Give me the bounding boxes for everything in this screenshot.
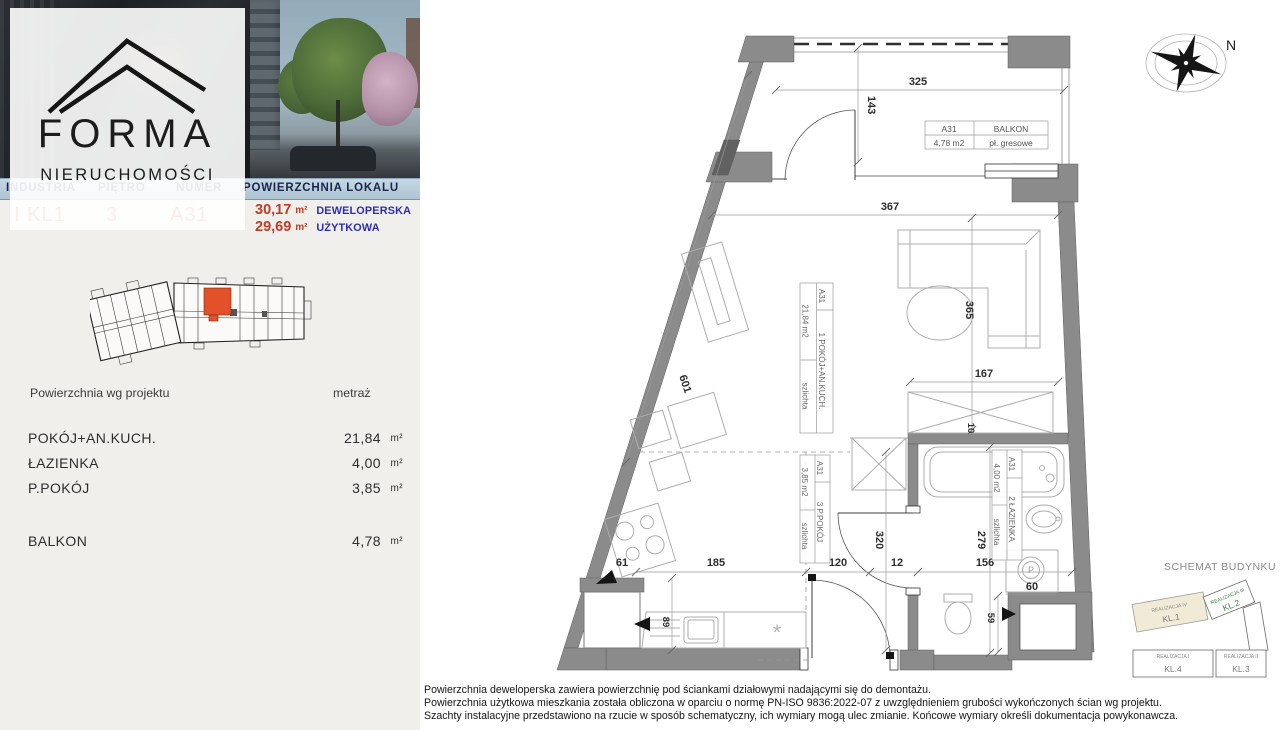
compass-north-label: N xyxy=(1226,37,1236,53)
dim-wall-diagonal: 601 xyxy=(676,373,693,394)
room-boundaries xyxy=(640,438,908,612)
parked-car xyxy=(290,146,376,168)
floor-plan-drawing: P * xyxy=(420,0,1280,730)
area-uzytkowa: 29,69 m² UŻYTKOWA xyxy=(255,218,411,235)
column-powierzchnia: POWIERZCHNIA LOKALU xyxy=(243,182,399,194)
schemat-block-kl1: REALIZACJA IV KL.1 xyxy=(1132,592,1208,632)
tree-blossom xyxy=(362,52,418,126)
dim-balcony-depth: 143 xyxy=(865,96,877,114)
schemat-budynku: SCHEMAT BUDYNKU REALIZACJA IV KL.1 REALI… xyxy=(1132,561,1276,677)
room-label-pokoj: 21,84 m2 szlichta A31 1 POKÓJ+AN.KUCH. xyxy=(800,283,833,433)
toilet xyxy=(944,594,972,634)
room-label: P.POKÓJ xyxy=(28,480,90,496)
dim-balcony-width: 325 xyxy=(909,76,927,88)
brand-logo: FORMA NIERUCHOMOŚCI xyxy=(10,8,245,230)
pokoj-area: 21,84 m2 xyxy=(801,304,810,338)
ppokoj-name: 3 P.POKÓJ xyxy=(815,502,824,542)
bathroom-door xyxy=(838,506,920,595)
disclaimer-text: Powierzchnia deweloperska zawiera powier… xyxy=(424,684,1280,723)
dim-room-width: 367 xyxy=(881,201,899,213)
schemat-block-kl3: REALIZACJA II KL.3 xyxy=(1216,650,1266,677)
room-label: POKÓJ+AN.KUCH. xyxy=(28,430,156,446)
wardrobe xyxy=(908,392,1053,433)
dim-bath-width: 156 xyxy=(976,557,994,569)
area-uzytkowa-value: 29,69 xyxy=(255,219,291,235)
schemat-block-kl4: REALIZACJA I KL.4 xyxy=(1133,650,1213,677)
roof-logo-icon xyxy=(10,8,245,118)
room-area-unit: m² xyxy=(391,483,403,494)
building-facade-left xyxy=(250,0,280,150)
brand-subtitle: NIERUCHOMOŚCI xyxy=(10,166,245,185)
schemat-kl4-label: KL.4 xyxy=(1164,664,1182,674)
dim-kitchen-width: 185 xyxy=(707,557,725,569)
dim-hall-width: 120 xyxy=(829,557,847,569)
ppokoj-area: 3,85 m2 xyxy=(800,468,809,497)
disclaimer-line: Powierzchnia użytkowa mieszkania została… xyxy=(424,697,1280,710)
schemat-title: SCHEMAT BUDYNKU xyxy=(1164,561,1276,573)
shaft-box xyxy=(852,438,906,490)
balcony-code: A31 xyxy=(941,124,956,134)
schemat-kl4-name: REALIZACJA I xyxy=(1157,654,1190,660)
pokoj-code: A31 xyxy=(817,289,826,304)
room-area-unit: m² xyxy=(391,458,403,469)
lazienka-finish: szlichta xyxy=(992,519,1001,546)
pokoj-name: 1 POKÓJ+AN.KUCH. xyxy=(817,333,826,410)
room-area-unit: m² xyxy=(391,536,403,547)
dim-bath-depth: 279 xyxy=(975,531,987,549)
dim-kitchen-corner: 61 xyxy=(616,557,628,569)
balcony-area: 4,78 m2 xyxy=(934,138,965,148)
floor-overview-minimap xyxy=(90,253,318,365)
schemat-connector xyxy=(1243,602,1268,652)
corner-sofa xyxy=(898,230,1040,348)
balcony-door xyxy=(785,110,855,180)
minimap-left-wing xyxy=(90,274,183,365)
minimap-right-wing xyxy=(174,278,311,349)
washbasin xyxy=(1026,505,1062,533)
area-uzytkowa-label: UŻYTKOWA xyxy=(316,222,379,234)
area-deweloperska-label: DEWELOPERSKA xyxy=(316,205,411,217)
pokoj-finish: szlichta xyxy=(801,383,810,410)
table-header-right: metraż xyxy=(333,386,371,400)
room-label: BALKON xyxy=(28,533,87,549)
unit-areas: 30,17 m² DEWELOPERSKA 29,69 m² UŻYTKOWA xyxy=(255,201,411,235)
compass-rose-icon: N xyxy=(1142,23,1237,103)
room-label-ppokoj: 3,85 m2 szlichta A31 3 P.POKÓJ xyxy=(800,455,830,563)
table-header-left: Powierzchnia wg projektu xyxy=(30,386,169,400)
brand-name: FORMA xyxy=(10,112,245,157)
dim-counter-depth: 89 xyxy=(660,617,671,628)
dim-wardrobe-width: 167 xyxy=(975,368,993,380)
area-deweloperska: 30,17 m² DEWELOPERSKA xyxy=(255,201,411,218)
lazienka-name: 2 ŁAZIENKA xyxy=(1007,496,1016,542)
areas-table: Powierzchnia wg projektu metraż POKÓJ+AN… xyxy=(0,380,420,580)
room-area-unit: m² xyxy=(391,433,403,444)
lazienka-area: 4,00 m2 xyxy=(992,464,1001,493)
area-deweloperska-unit: m² xyxy=(295,205,307,216)
ppokoj-finish: szlichta xyxy=(800,523,809,550)
room-area-value: 4,78 xyxy=(352,533,381,549)
lazienka-code: A31 xyxy=(1007,457,1016,472)
room-label: ŁAZIENKA xyxy=(28,455,99,471)
disclaimer-line: Szachty instalacyjne przedstawiono na rz… xyxy=(424,710,1280,723)
listing-side-panel: INDUSTRIA PIĘTRO NUMER POWIERZCHNIA LOKA… xyxy=(0,0,420,730)
schemat-kl3-name: REALIZACJA II xyxy=(1224,654,1258,660)
balcony-label-box: A31 BALKON 4,78 m2 pł. gresowe xyxy=(925,121,1048,149)
area-uzytkowa-unit: m² xyxy=(295,222,307,233)
doors-layer xyxy=(758,110,920,670)
dim-wardrobe-gap: 10 xyxy=(965,423,976,434)
dim-wall-12: 12 xyxy=(891,557,903,569)
area-deweloperska-value: 30,17 xyxy=(255,202,291,218)
room-area-value: 21,84 xyxy=(344,430,381,446)
photo-street-view xyxy=(250,0,420,178)
room-label-lazienka: 4,00 m2 szlichta A31 2 ŁAZIENKA xyxy=(992,450,1022,560)
dim-entry-gap: 59 xyxy=(985,613,996,624)
ppokoj-code: A31 xyxy=(815,461,824,476)
schemat-kl3-label: KL.3 xyxy=(1232,664,1250,674)
dim-hall-depth: 320 xyxy=(873,531,885,549)
balcony-name: BALKON xyxy=(994,124,1029,134)
room-area-value: 4,00 xyxy=(352,455,381,471)
balcony-finish: pł. gresowe xyxy=(989,138,1033,148)
washer-p-symbol: P xyxy=(1028,565,1034,575)
windows-layer xyxy=(772,164,1058,179)
dim-washer-width: 60 xyxy=(1026,581,1038,593)
disclaimer-line: Powierzchnia deweloperska zawiera powier… xyxy=(424,684,1280,697)
room-area-value: 3,85 xyxy=(352,480,381,496)
light-point-symbol: * xyxy=(773,620,782,645)
dim-room-depth: 365 xyxy=(963,301,975,319)
